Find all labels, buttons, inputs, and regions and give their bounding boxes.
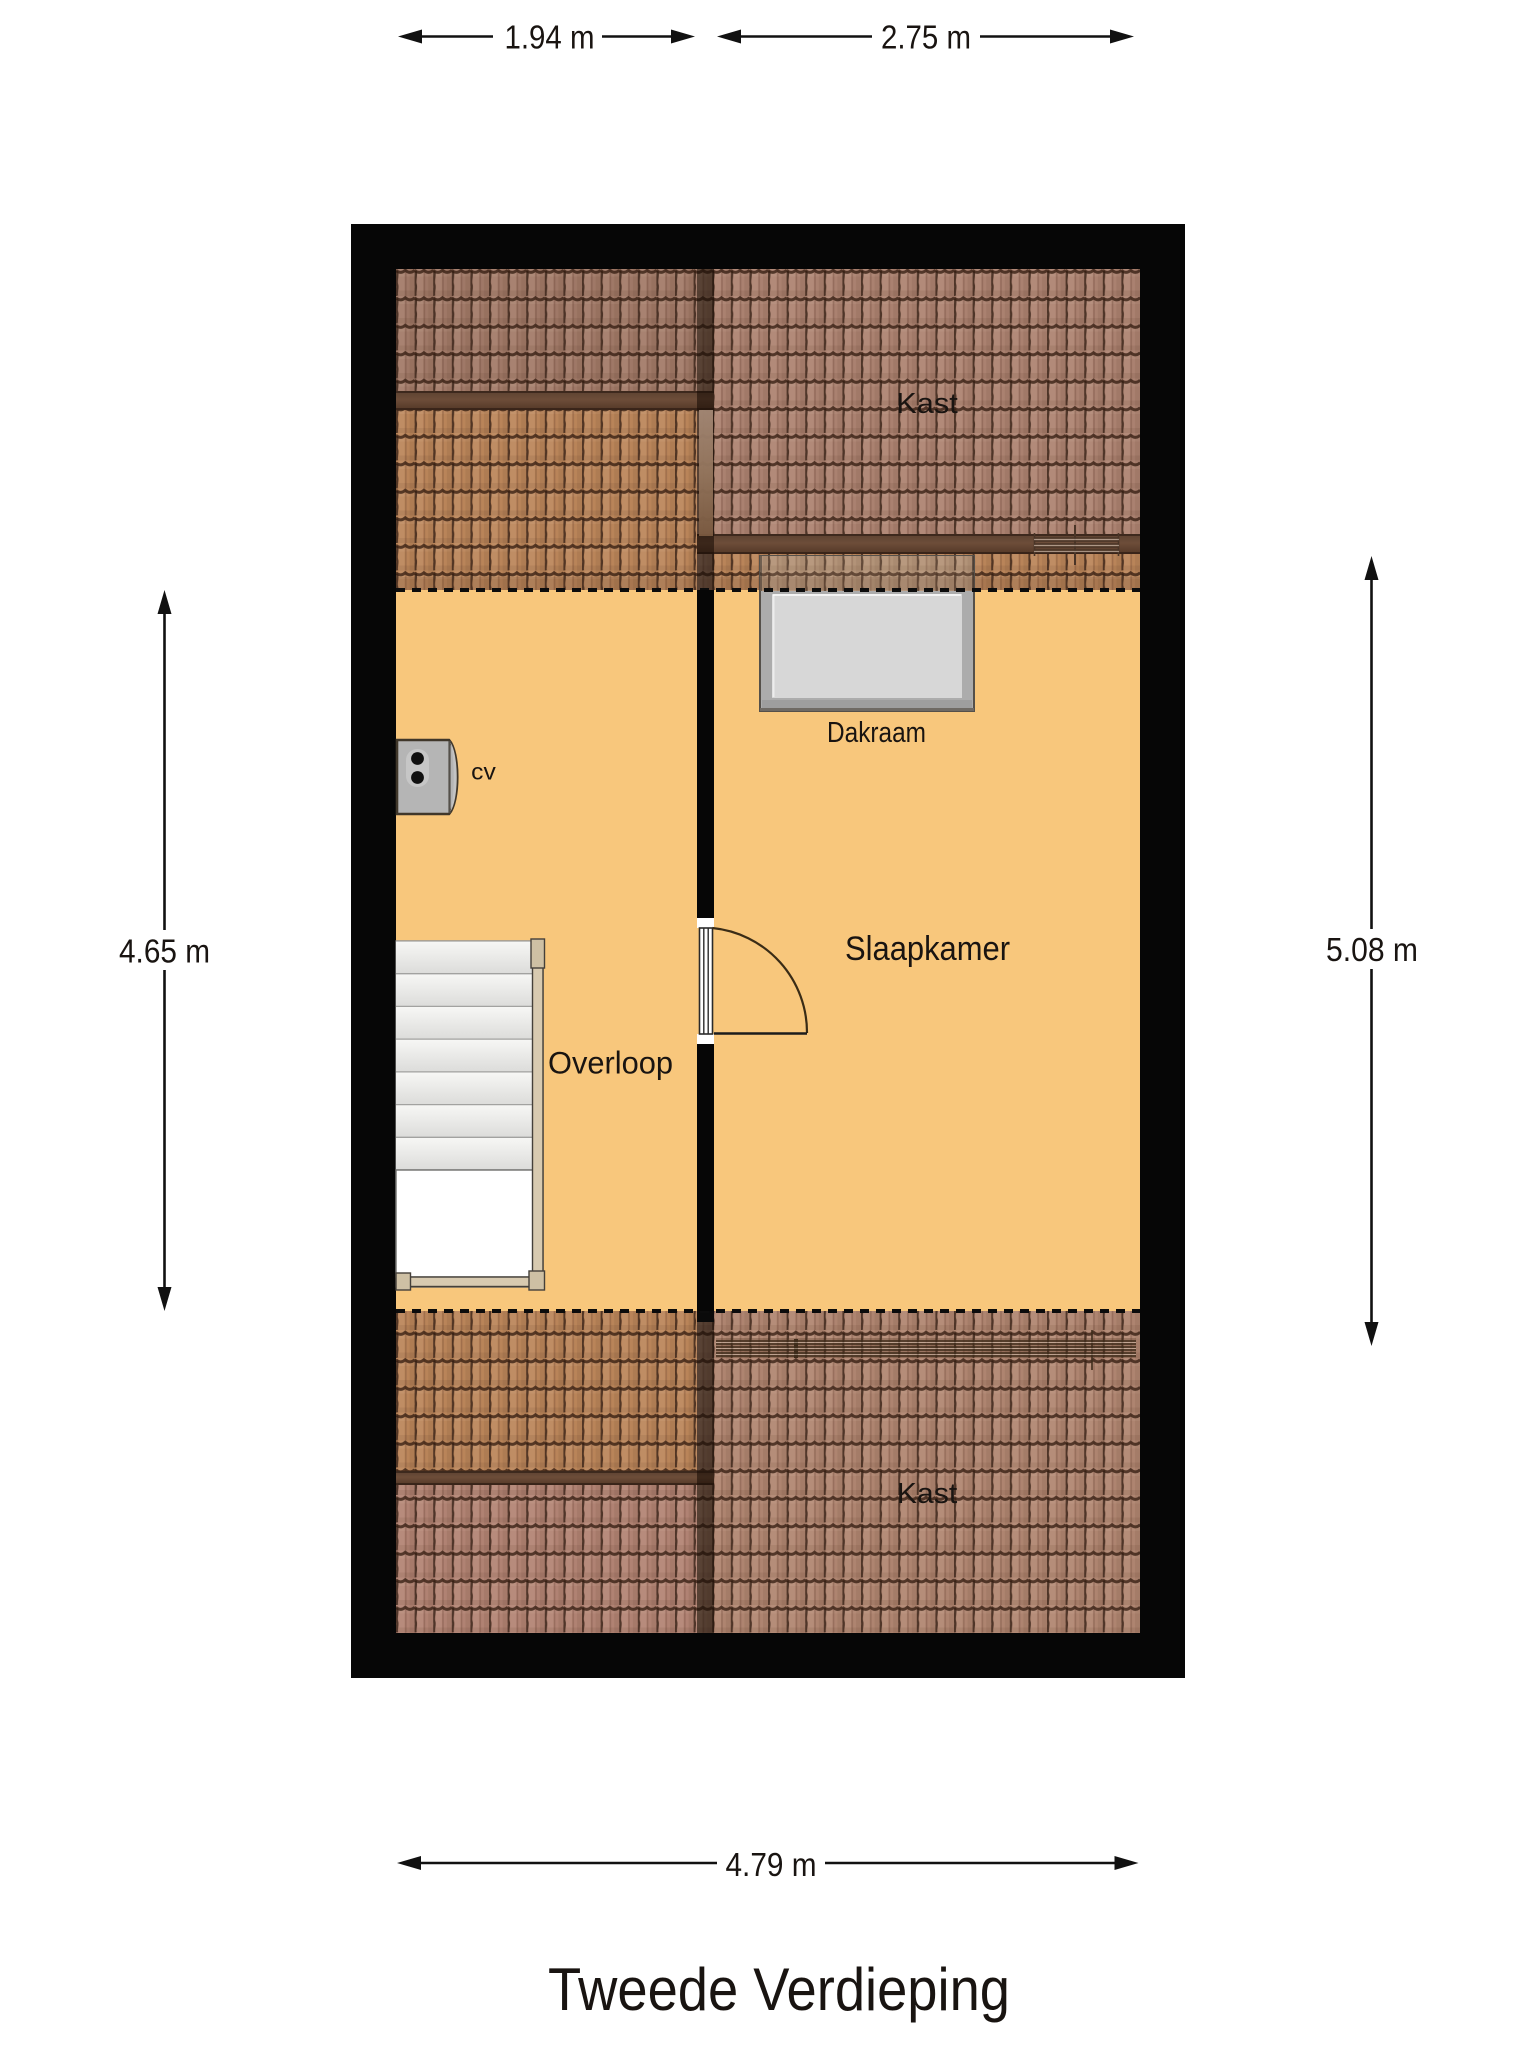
svg-text:Kast: Kast — [897, 1478, 958, 1510]
svg-text:4.65 m: 4.65 m — [119, 933, 210, 970]
svg-text:2.75 m: 2.75 m — [881, 19, 971, 56]
svg-text:Slaapkamer: Slaapkamer — [845, 930, 1010, 968]
svg-text:Overloop: Overloop — [548, 1045, 673, 1081]
svg-text:Dakraam: Dakraam — [827, 717, 926, 749]
svg-text:Kast: Kast — [896, 388, 958, 420]
svg-text:5.08 m: 5.08 m — [1326, 931, 1418, 968]
svg-text:cv: cv — [471, 759, 496, 785]
svg-text:Tweede Verdieping: Tweede Verdieping — [548, 1956, 1010, 2023]
svg-text:1.94 m: 1.94 m — [505, 19, 595, 56]
svg-text:4.79 m: 4.79 m — [726, 1846, 817, 1883]
